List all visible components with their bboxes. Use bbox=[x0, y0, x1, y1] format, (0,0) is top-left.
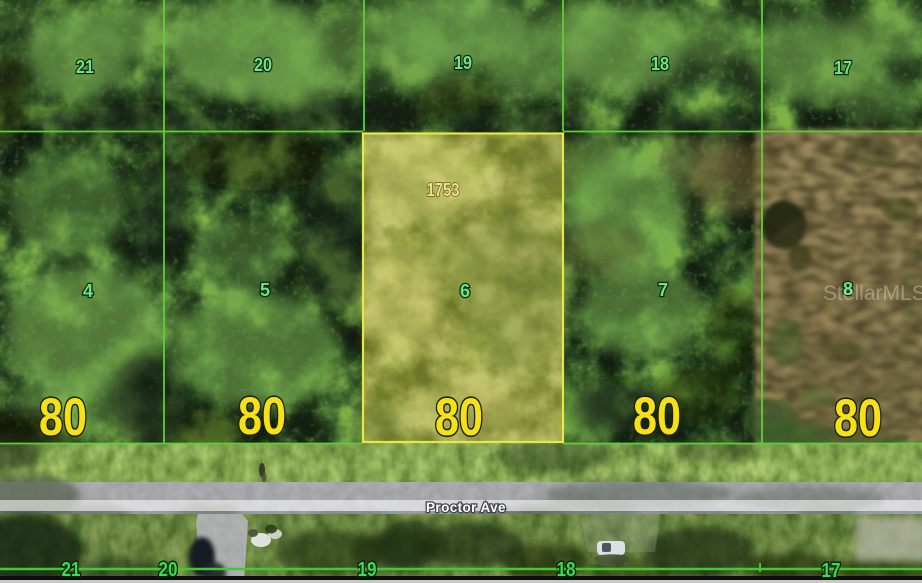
svg-text:18: 18 bbox=[557, 559, 576, 581]
svg-text:1753: 1753 bbox=[427, 180, 460, 200]
svg-text:5: 5 bbox=[260, 280, 270, 300]
svg-text:80: 80 bbox=[633, 387, 681, 446]
svg-text:17: 17 bbox=[822, 560, 841, 582]
svg-text:4: 4 bbox=[83, 281, 93, 301]
svg-text:7: 7 bbox=[658, 280, 668, 300]
svg-text:19: 19 bbox=[358, 559, 377, 581]
svg-text:80: 80 bbox=[435, 388, 483, 447]
svg-text:18: 18 bbox=[651, 54, 669, 74]
svg-text:6: 6 bbox=[460, 281, 470, 301]
svg-text:80: 80 bbox=[39, 388, 87, 447]
svg-text:21: 21 bbox=[62, 559, 81, 581]
svg-text:80: 80 bbox=[238, 387, 286, 446]
svg-text:19: 19 bbox=[454, 53, 472, 73]
svg-text:20: 20 bbox=[159, 559, 178, 581]
svg-text:Proctor Ave: Proctor Ave bbox=[426, 500, 506, 515]
svg-text:StellarMLS: StellarMLS bbox=[823, 282, 922, 305]
svg-text:17: 17 bbox=[834, 58, 852, 78]
svg-text:80: 80 bbox=[834, 389, 882, 448]
svg-text:20: 20 bbox=[254, 55, 272, 75]
svg-text:21: 21 bbox=[76, 57, 94, 77]
